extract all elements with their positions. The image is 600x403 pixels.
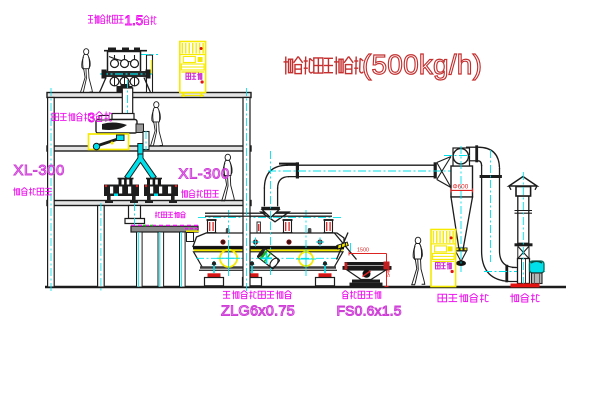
svg-text:XL-300: XL-300 [179, 167, 230, 183]
svg-text:1.5: 1.5 [125, 13, 144, 28]
svg-text:3: 3 [88, 111, 95, 125]
svg-text:1500: 1500 [357, 248, 369, 254]
svg-text:XL-300: XL-300 [14, 163, 65, 179]
svg-text:FS0.6x1.5: FS0.6x1.5 [337, 303, 402, 319]
svg-text:ZLG6x0.75: ZLG6x0.75 [221, 304, 295, 320]
svg-text:(500kg/h): (500kg/h) [362, 49, 482, 80]
